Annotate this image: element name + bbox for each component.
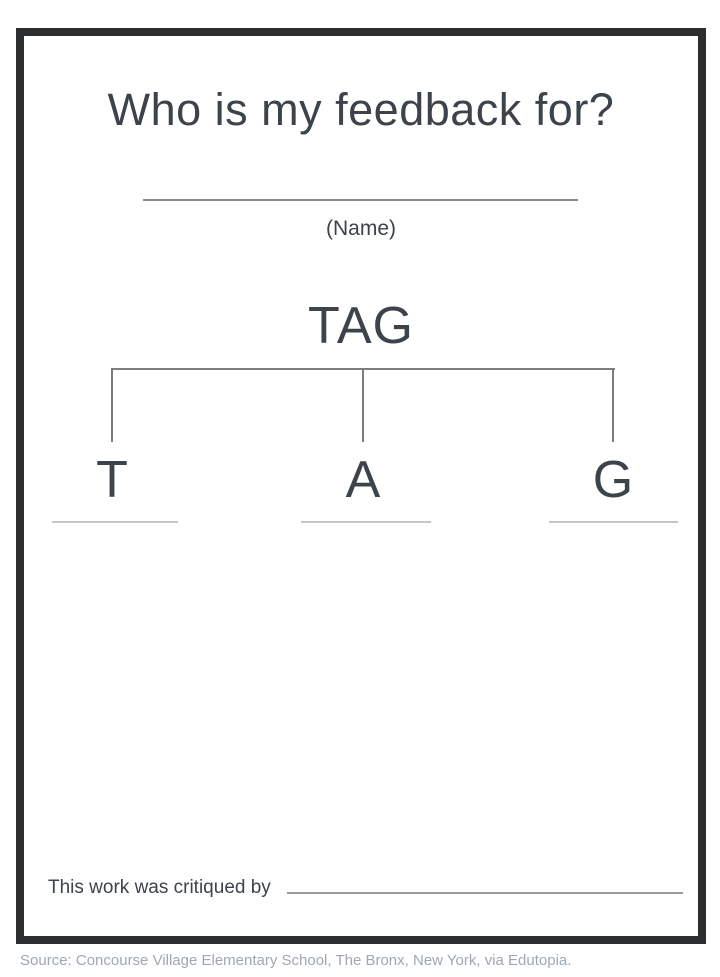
branch-blank-line-a: [301, 521, 431, 523]
branch-blank-line-g: [549, 521, 678, 523]
tag-root-heading: TAG: [16, 300, 706, 352]
branch-letter-a: A: [303, 454, 423, 506]
branch-letter-t: T: [52, 454, 172, 506]
name-label: (Name): [16, 216, 706, 242]
name-blank-line: [143, 199, 578, 201]
tree-connector-center: [362, 368, 364, 442]
branch-blank-line-t: [52, 521, 178, 523]
page-title: Who is my feedback for?: [16, 87, 706, 133]
critiqued-by-blank-line: [287, 892, 683, 894]
worksheet-page: Who is my feedback for? (Name) TAG T A G…: [0, 0, 720, 977]
tree-connector-right: [612, 368, 614, 442]
critiqued-by-label: This work was critiqued by: [48, 877, 271, 899]
branch-letter-g: G: [553, 454, 673, 506]
tree-connector-left: [111, 368, 113, 442]
source-citation: Source: Concourse Village Elementary Sch…: [20, 952, 571, 970]
